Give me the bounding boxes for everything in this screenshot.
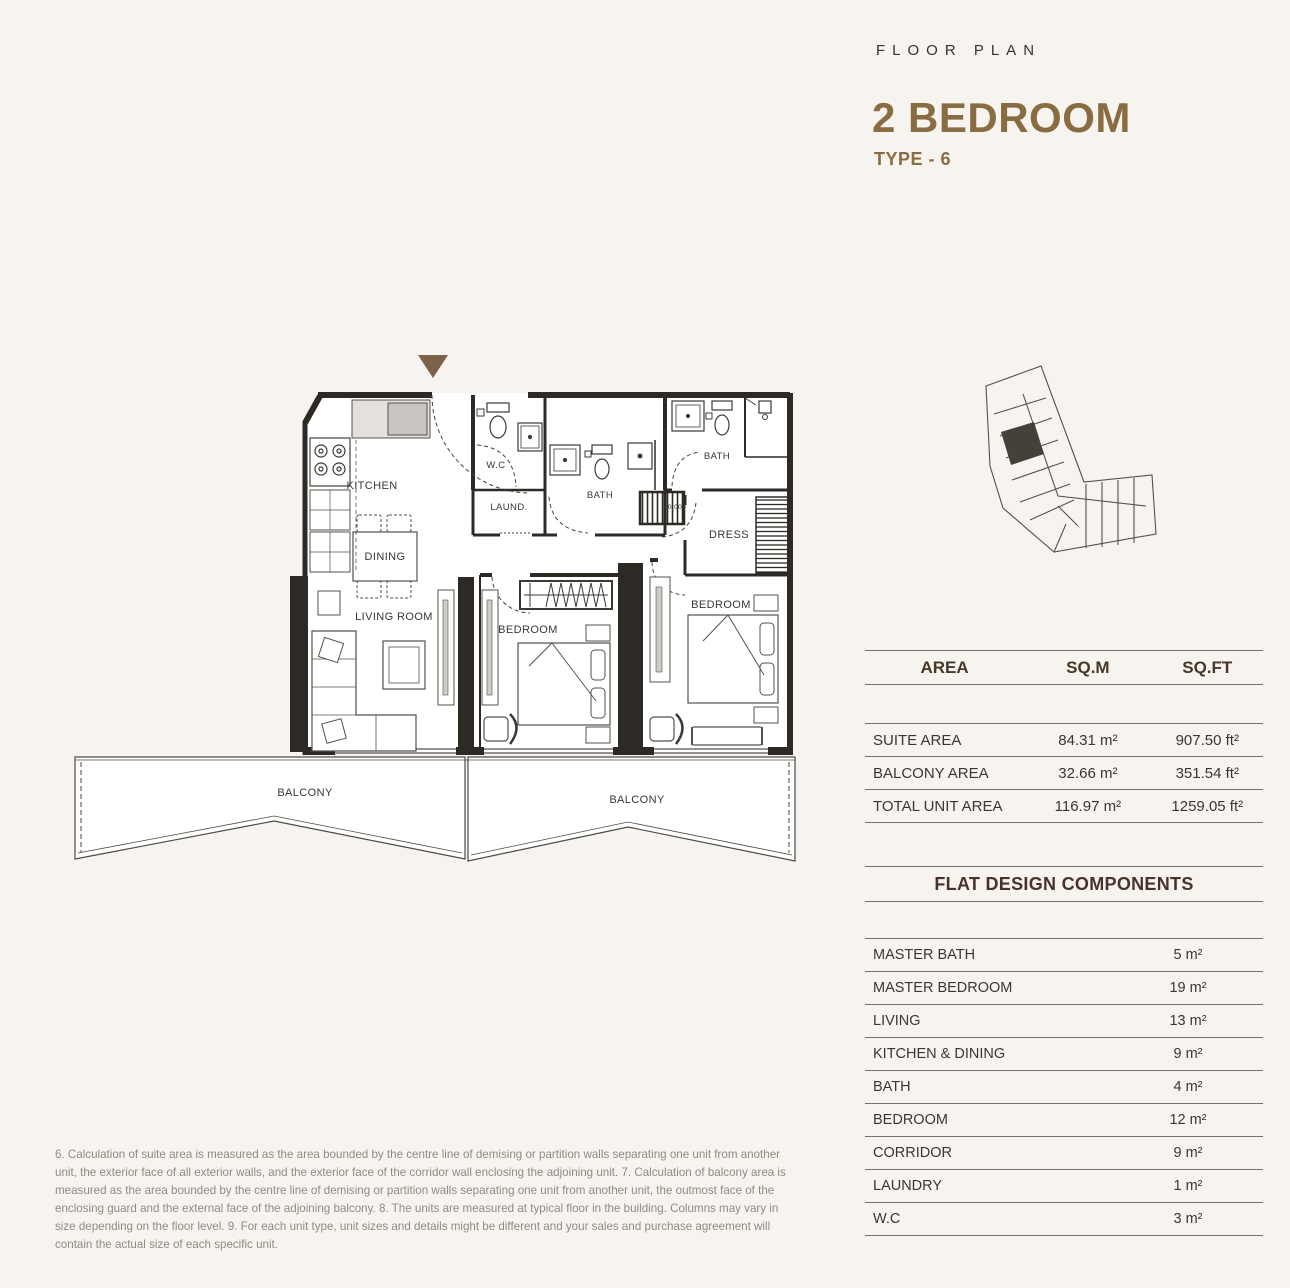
row-value: 9 m² [1113, 1145, 1263, 1161]
key-plan-highlighted-unit [1001, 422, 1044, 465]
row-value: 19 m² [1113, 980, 1263, 996]
row-label: MASTER BATH [865, 947, 1113, 963]
row-label: KITCHEN & DINING [865, 1046, 1113, 1062]
room-label-bedroom-mid: BEDROOM [498, 624, 558, 636]
row-sqm: 32.66 m² [1024, 765, 1151, 782]
table-row: LAUNDRY 1 m² [865, 1170, 1263, 1202]
table-row: SUITE AREA 84.31 m² 907.50 ft² [865, 724, 1263, 756]
area-header-sqft: SQ.FT [1152, 658, 1263, 678]
disclaimer-text: 6. Calculation of suite area is measured… [55, 1146, 795, 1254]
row-label: TOTAL UNIT AREA [865, 798, 1024, 815]
room-label-balcony-right: BALCONY [609, 794, 665, 806]
row-sqft: 1259.05 ft² [1152, 798, 1263, 815]
room-label-dress: DRESS [709, 529, 749, 541]
spacer [865, 685, 1263, 723]
row-value: 12 m² [1113, 1112, 1263, 1128]
row-label: BALCONY AREA [865, 765, 1024, 782]
row-sqft: 907.50 ft² [1152, 732, 1263, 749]
page: { "colors": { "background": "#f7f4f0", "… [0, 0, 1290, 1288]
page-subtitle: TYPE - 6 [874, 149, 951, 170]
components-title: FLAT DESIGN COMPONENTS [865, 867, 1263, 901]
table-row: MASTER BATH 5 m² [865, 939, 1263, 971]
room-label-living: LIVING ROOM [355, 611, 433, 623]
table-row: KITCHEN & DINING 9 m² [865, 1038, 1263, 1070]
floor-fills [75, 393, 795, 861]
area-header-sqm: SQ.M [1024, 658, 1151, 678]
key-plan [946, 356, 1158, 571]
floor-plan-drawing: KITCHEN W.C LAUND. BATH BATH DRESS DININ… [40, 345, 840, 905]
area-header-label: AREA [865, 658, 1024, 678]
area-table-header: AREA SQ.M SQ.FT [865, 651, 1263, 684]
row-value: 13 m² [1113, 1013, 1263, 1029]
room-label-laundry: LAUND. [490, 502, 527, 513]
row-value: 4 m² [1113, 1079, 1263, 1095]
room-label-wc: W.C [486, 460, 505, 471]
table-row: LIVING 13 m² [865, 1005, 1263, 1037]
area-table: AREA SQ.M SQ.FT SUITE AREA 84.31 m² 907.… [865, 650, 1263, 823]
room-label-bath-small: BATH [587, 490, 613, 501]
divider [865, 1235, 1263, 1236]
table-row: W.C 3 m² [865, 1203, 1263, 1235]
table-row: MASTER BEDROOM 19 m² [865, 972, 1263, 1004]
table-row: TOTAL UNIT AREA 116.97 m² 1259.05 ft² [865, 790, 1263, 822]
row-sqft: 351.54 ft² [1152, 765, 1263, 782]
row-label: W.C [865, 1211, 1113, 1227]
row-label: BATH [865, 1079, 1113, 1095]
spacer [865, 902, 1263, 938]
table-row: BEDROOM 12 m² [865, 1104, 1263, 1136]
row-value: 3 m² [1113, 1211, 1263, 1227]
row-sqm: 84.31 m² [1024, 732, 1151, 749]
level-marker: 0.000 [668, 504, 686, 511]
room-label-kitchen: KITCHEN [346, 480, 397, 492]
table-row: BALCONY AREA 32.66 m² 351.54 ft² [865, 757, 1263, 789]
table-row: BATH 4 m² [865, 1071, 1263, 1103]
row-label: LIVING [865, 1013, 1113, 1029]
row-label: BEDROOM [865, 1112, 1113, 1128]
components-table: FLAT DESIGN COMPONENTS MASTER BATH 5 m² … [865, 866, 1263, 1236]
row-sqm: 116.97 m² [1024, 798, 1151, 815]
row-value: 5 m² [1113, 947, 1263, 963]
page-eyebrow: FLOOR PLAN [876, 42, 1041, 59]
room-label-balcony-left: BALCONY [277, 787, 333, 799]
room-label-bedroom-master: BEDROOM [691, 599, 751, 611]
row-value: 1 m² [1113, 1178, 1263, 1194]
entrance-marker-icon [418, 355, 448, 378]
row-label: SUITE AREA [865, 732, 1024, 749]
room-label-bath-master: BATH [704, 451, 730, 462]
row-value: 9 m² [1113, 1046, 1263, 1062]
page-title: 2 BEDROOM [872, 94, 1131, 142]
room-label-dining: DINING [365, 551, 406, 563]
row-label: LAUNDRY [865, 1178, 1113, 1194]
row-label: CORRIDOR [865, 1145, 1113, 1161]
table-row: CORRIDOR 9 m² [865, 1137, 1263, 1169]
divider [865, 822, 1263, 823]
row-label: MASTER BEDROOM [865, 980, 1113, 996]
